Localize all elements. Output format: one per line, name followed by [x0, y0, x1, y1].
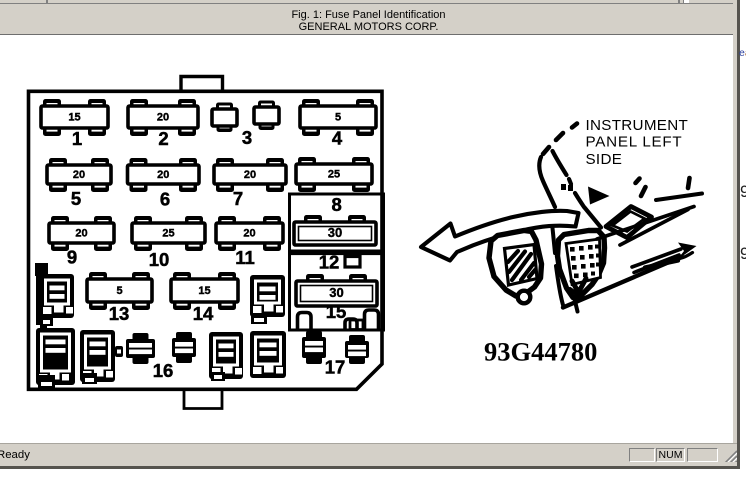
- svg-text:1: 1: [72, 128, 82, 149]
- svg-text:PANEL LEFT: PANEL LEFT: [586, 134, 683, 151]
- svg-text:9: 9: [67, 247, 77, 268]
- svg-text:20: 20: [157, 112, 169, 124]
- svg-text:2: 2: [158, 128, 168, 149]
- svg-text:93G44780: 93G44780: [484, 337, 597, 367]
- svg-text:16: 16: [153, 360, 174, 381]
- svg-text:8: 8: [332, 194, 342, 215]
- svg-text:5: 5: [116, 285, 122, 297]
- svg-text:5: 5: [71, 188, 81, 209]
- svg-text:13: 13: [109, 303, 130, 324]
- svg-text:6: 6: [160, 189, 170, 210]
- svg-text:7: 7: [233, 188, 243, 209]
- svg-text:15: 15: [326, 301, 347, 322]
- svg-text:10: 10: [149, 249, 170, 270]
- svg-text:25: 25: [328, 169, 340, 181]
- svg-text:14: 14: [193, 303, 214, 324]
- svg-text:11: 11: [235, 247, 255, 268]
- svg-text:12: 12: [319, 252, 340, 273]
- svg-text:3: 3: [242, 127, 252, 148]
- svg-text:20: 20: [75, 228, 87, 240]
- svg-text:20: 20: [73, 169, 85, 181]
- svg-text:20: 20: [244, 169, 256, 181]
- svg-text:17: 17: [325, 357, 346, 378]
- svg-text:20: 20: [157, 169, 169, 181]
- svg-text:20: 20: [243, 228, 255, 240]
- svg-text:25: 25: [162, 228, 174, 240]
- svg-text:5: 5: [335, 112, 341, 124]
- svg-text:4: 4: [332, 128, 343, 149]
- svg-text:15: 15: [198, 285, 210, 297]
- svg-text:30: 30: [328, 225, 342, 240]
- svg-text:30: 30: [329, 285, 343, 300]
- svg-text:INSTRUMENT: INSTRUMENT: [586, 117, 689, 134]
- svg-text:SIDE: SIDE: [586, 151, 623, 168]
- svg-text:15: 15: [68, 112, 80, 124]
